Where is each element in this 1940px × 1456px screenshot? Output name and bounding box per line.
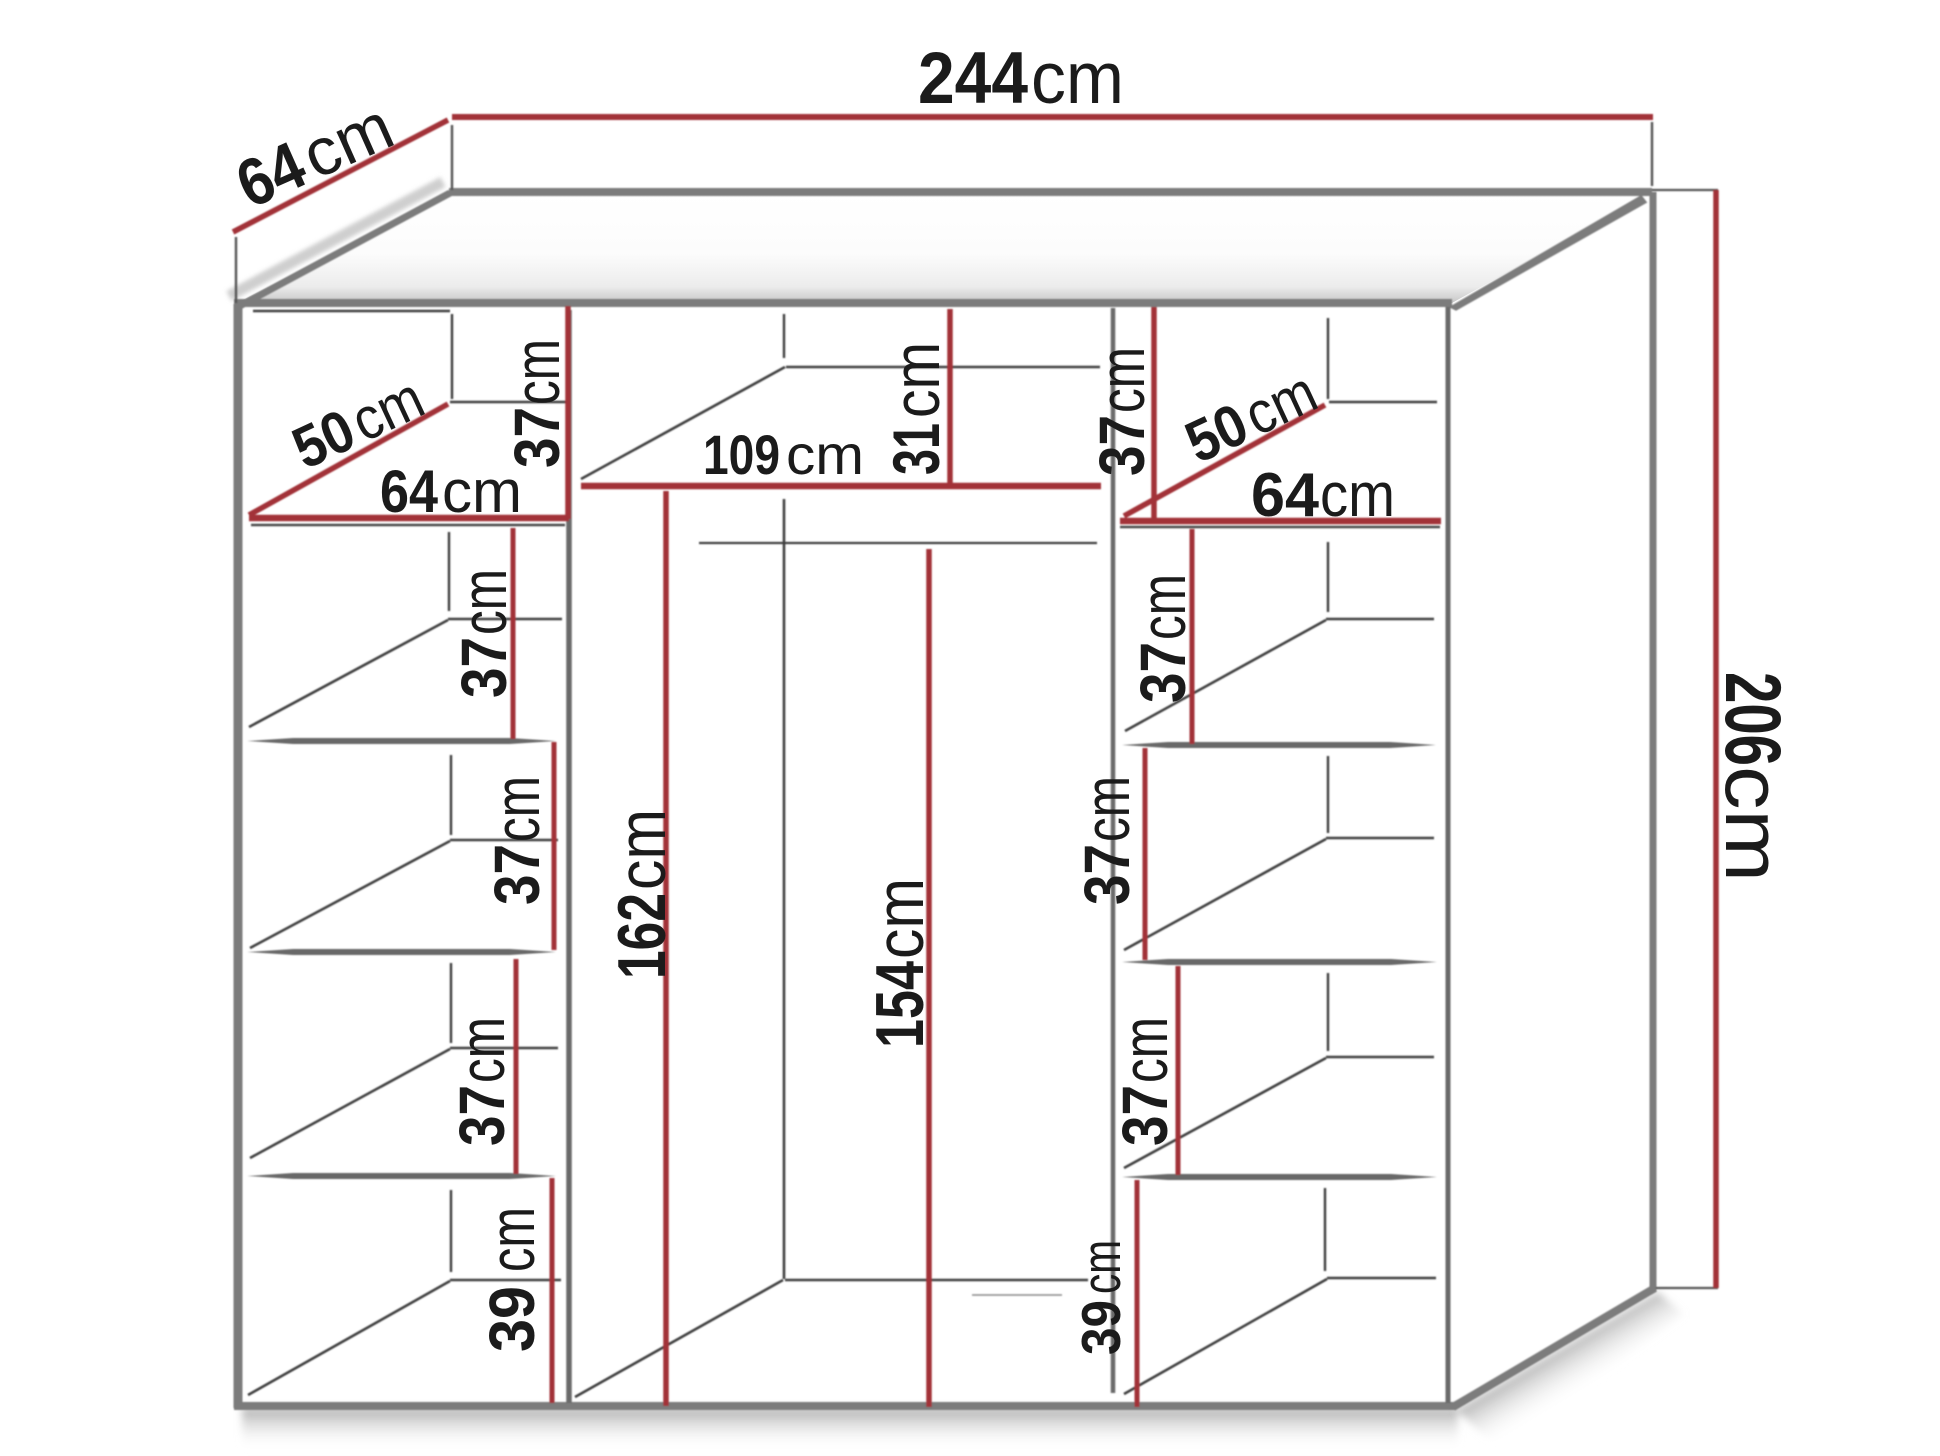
svg-text:37: 37 — [1109, 1085, 1181, 1146]
svg-text:162: 162 — [604, 893, 680, 979]
svg-text:37: 37 — [501, 407, 573, 468]
svg-text:cm: cm — [448, 569, 520, 635]
svg-text:cm: cm — [879, 342, 953, 418]
svg-text:cm: cm — [476, 1207, 548, 1272]
svg-text:cm: cm — [501, 339, 573, 405]
svg-text:cm: cm — [604, 809, 680, 890]
svg-text:37: 37 — [481, 844, 553, 905]
svg-text:cm: cm — [786, 423, 864, 486]
svg-text:31: 31 — [879, 423, 953, 475]
svg-text:cm: cm — [1031, 38, 1124, 119]
svg-text:64: 64 — [1251, 461, 1320, 530]
svg-text:109: 109 — [703, 423, 780, 486]
svg-text:cm: cm — [1070, 1240, 1132, 1294]
svg-text:37: 37 — [1127, 642, 1199, 703]
svg-text:cm: cm — [446, 1017, 518, 1083]
svg-text:37: 37 — [1086, 415, 1158, 476]
svg-text:cm: cm — [1320, 461, 1395, 530]
svg-text:39: 39 — [1070, 1300, 1132, 1355]
svg-text:cm: cm — [1109, 1017, 1181, 1083]
svg-text:cm: cm — [1709, 766, 1798, 882]
svg-text:154: 154 — [862, 961, 938, 1048]
svg-text:37: 37 — [446, 1085, 518, 1146]
svg-text:cm: cm — [1127, 574, 1199, 640]
svg-text:37: 37 — [1071, 844, 1143, 905]
svg-text:244: 244 — [918, 38, 1028, 119]
svg-text:cm: cm — [481, 776, 553, 842]
svg-text:206: 206 — [1709, 672, 1798, 766]
svg-text:cm: cm — [862, 878, 938, 959]
svg-text:39: 39 — [476, 1286, 548, 1352]
svg-text:cm: cm — [1086, 347, 1158, 413]
svg-text:37: 37 — [448, 637, 520, 698]
svg-text:64: 64 — [380, 458, 439, 525]
svg-text:cm: cm — [1071, 776, 1143, 842]
